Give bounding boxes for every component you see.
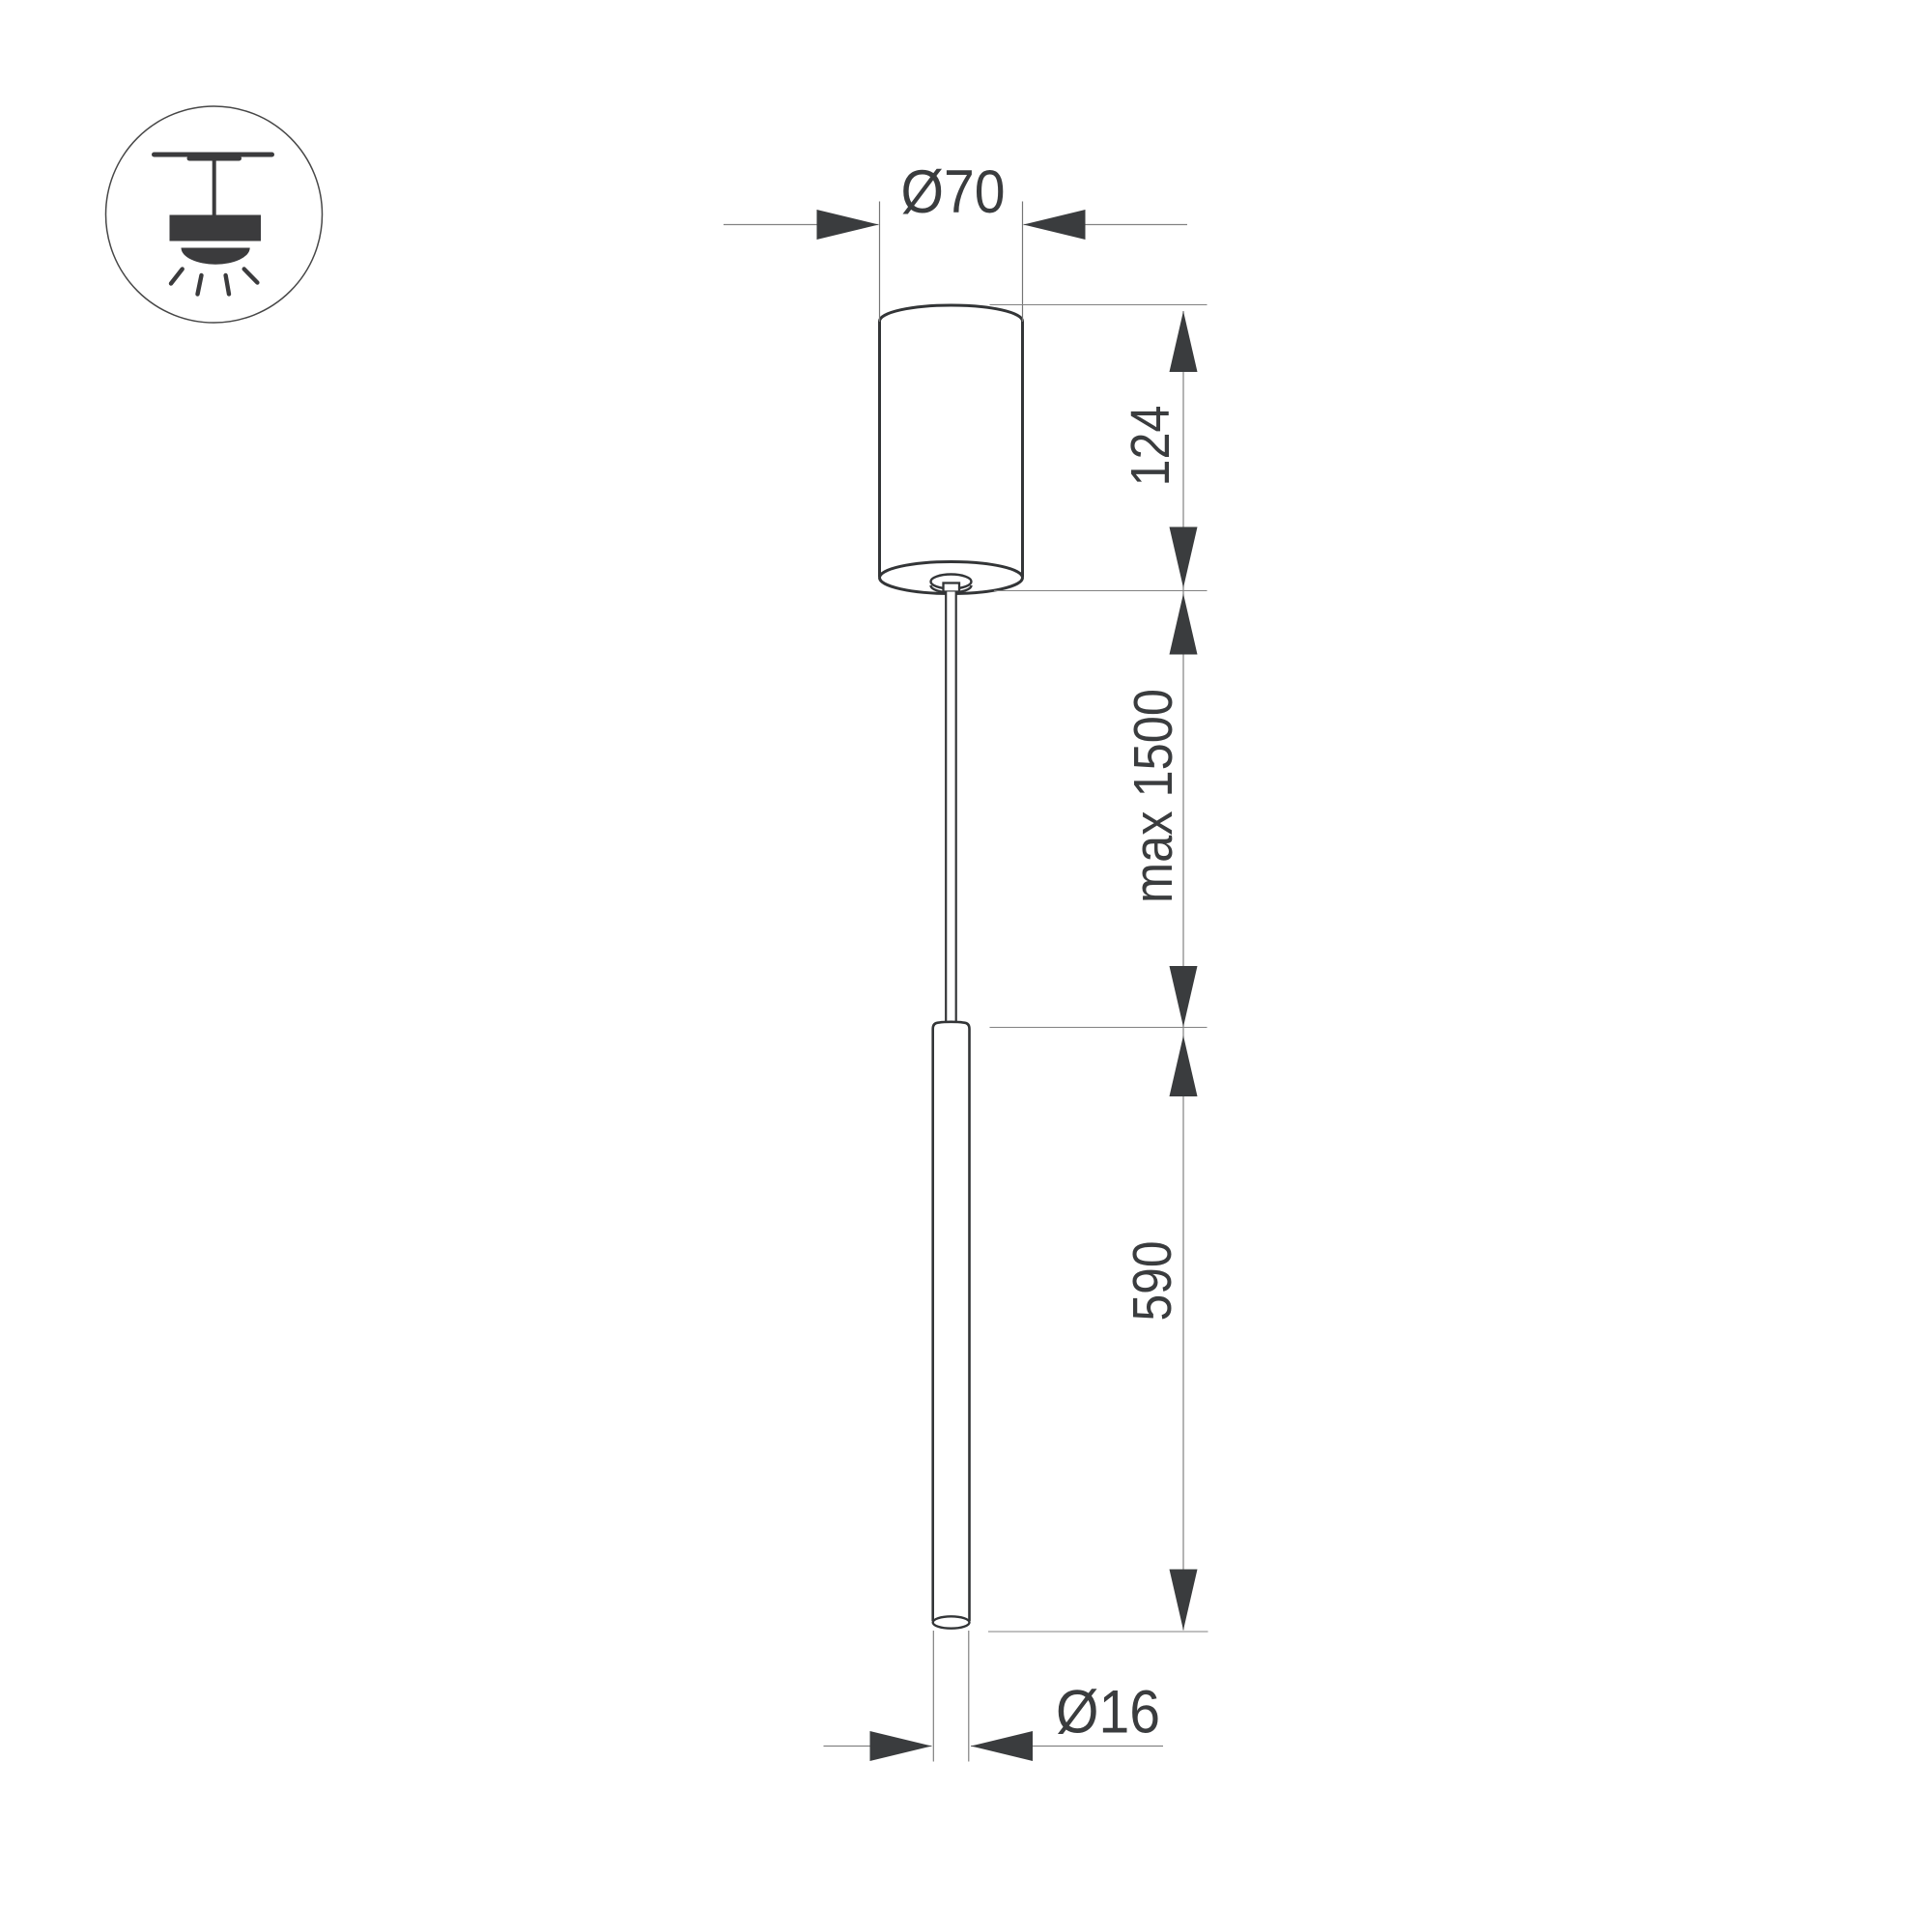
- svg-text:Ø16: Ø16: [1056, 1679, 1160, 1747]
- svg-text:max 1500: max 1500: [1122, 689, 1184, 903]
- svg-text:590: 590: [1122, 1241, 1183, 1321]
- svg-text:Ø70: Ø70: [901, 158, 1006, 226]
- svg-text:124: 124: [1120, 406, 1181, 487]
